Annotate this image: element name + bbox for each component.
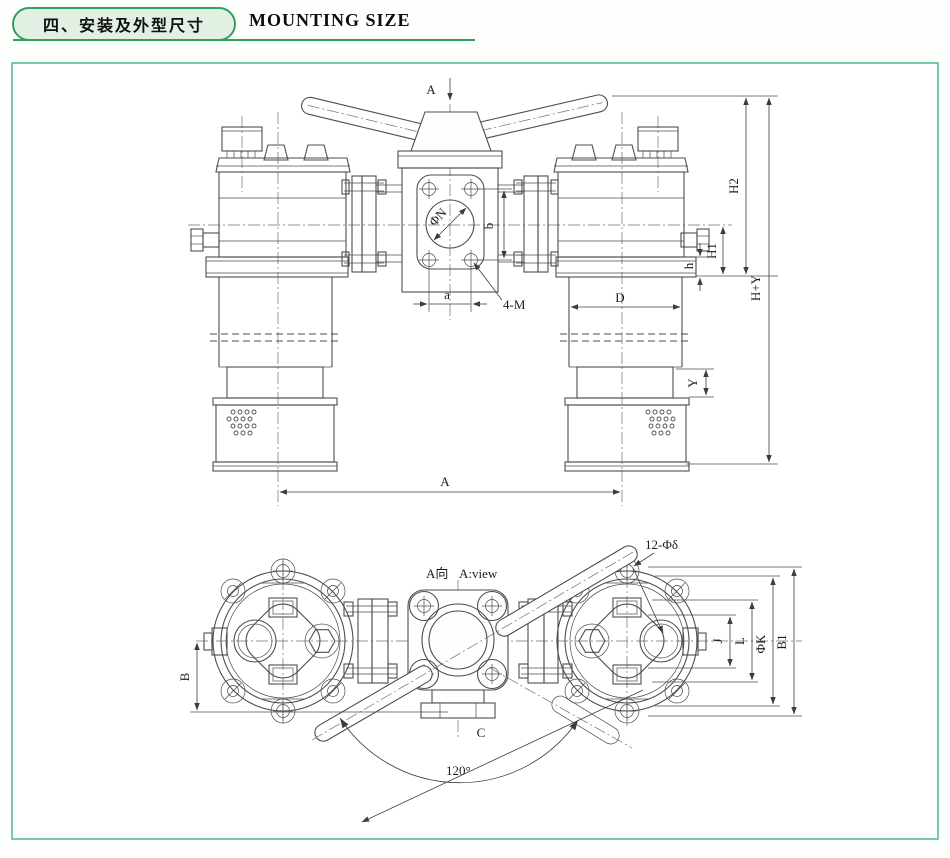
dim-h-plus-y: H+Y (748, 274, 763, 301)
dim-phi-k: ΦK (753, 634, 768, 654)
view-direction-label: A (426, 82, 436, 97)
dim-h: h (681, 262, 696, 269)
page: { "header": { "section_cn": "四、安装及外型尺寸",… (0, 0, 950, 858)
dim-d: D (615, 290, 624, 305)
dim-c: C (477, 725, 486, 740)
technical-drawing: ΦN (0, 0, 950, 858)
a-view-title-en: A:view (459, 566, 498, 581)
dim-a-span: A (440, 474, 450, 489)
dim-h1: H1 (704, 243, 719, 259)
dim-4m: 4-M (503, 297, 526, 312)
dim-12-phi: 12-Φδ (645, 537, 678, 552)
dim-angle: 120° (446, 763, 471, 778)
dim-l: L (732, 637, 747, 645)
dim-j: J (710, 638, 725, 643)
dim-b: b (481, 223, 496, 230)
dim-b1: B1 (774, 634, 789, 649)
drawing-frame (12, 63, 938, 839)
a-view-title-cn: A向 (426, 566, 448, 581)
dim-y: Y (685, 378, 700, 388)
dim-h2: H2 (726, 178, 741, 194)
dim-a: a (444, 287, 450, 302)
dim-b-cap: B (177, 672, 192, 681)
